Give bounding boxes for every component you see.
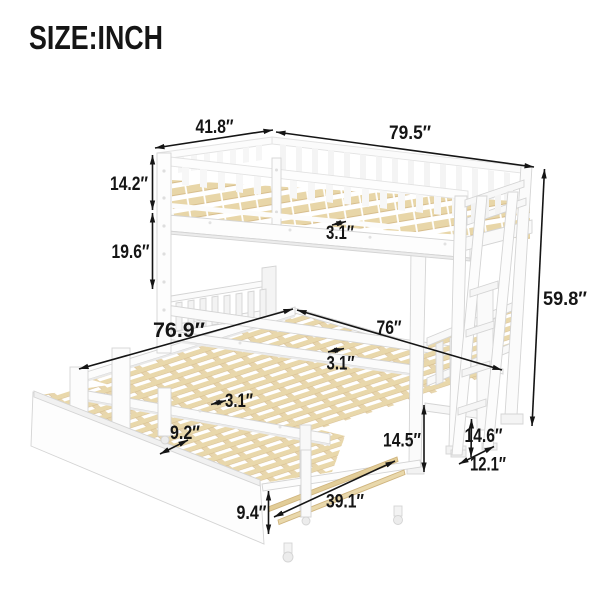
- svg-text:SIZE:INCH: SIZE:INCH: [29, 19, 163, 56]
- svg-text:3.1″: 3.1″: [327, 354, 355, 375]
- svg-text:59.8″: 59.8″: [543, 289, 587, 310]
- svg-text:14.2″: 14.2″: [110, 174, 148, 195]
- svg-text:76″: 76″: [377, 318, 402, 339]
- svg-text:3.1″: 3.1″: [326, 223, 354, 244]
- svg-text:3.1″: 3.1″: [225, 391, 253, 412]
- svg-text:19.6″: 19.6″: [112, 242, 150, 263]
- svg-text:79.5″: 79.5″: [389, 123, 431, 144]
- svg-text:76.9″: 76.9″: [153, 319, 205, 342]
- svg-text:39.1″: 39.1″: [326, 492, 364, 513]
- svg-text:12.1″: 12.1″: [470, 455, 506, 476]
- svg-text:14.6″: 14.6″: [465, 426, 503, 447]
- svg-text:41.8″: 41.8″: [196, 117, 234, 138]
- svg-text:9.2″: 9.2″: [170, 423, 200, 444]
- svg-text:9.4″: 9.4″: [237, 503, 267, 524]
- svg-text:14.5″: 14.5″: [383, 431, 421, 452]
